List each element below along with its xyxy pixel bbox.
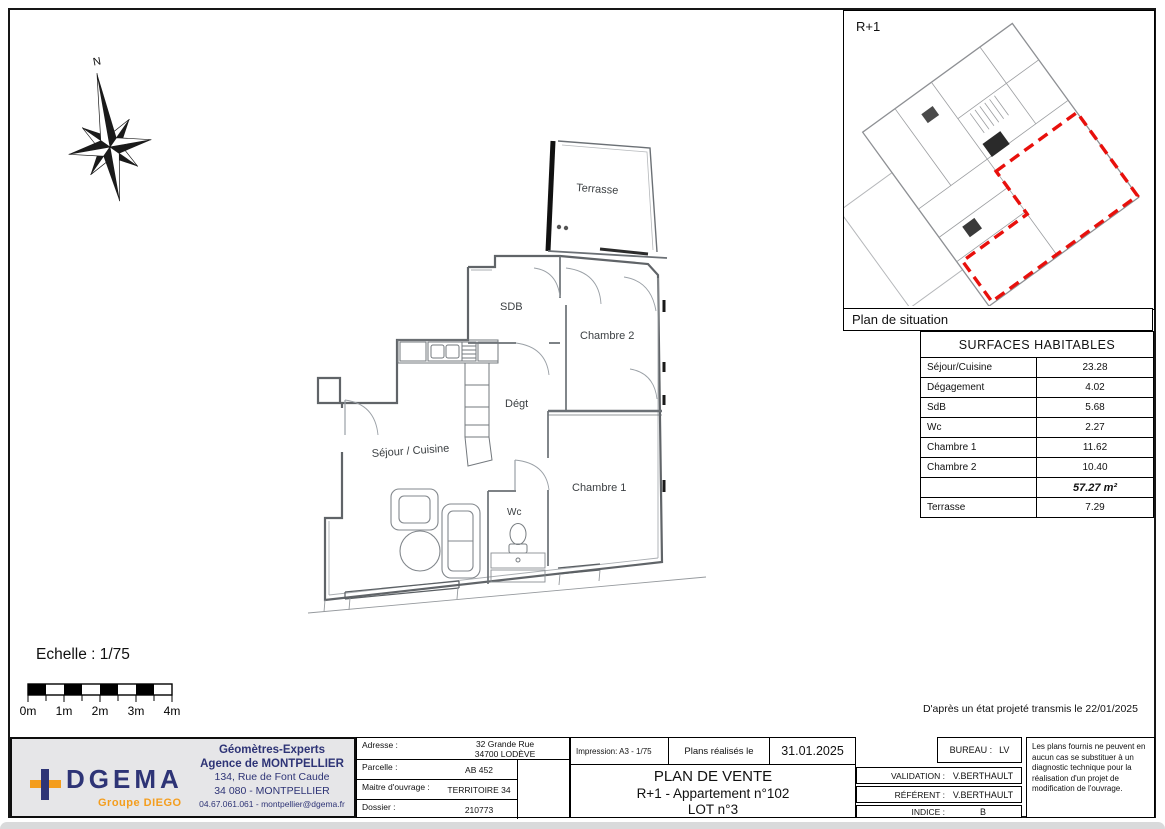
drawing-title: PLAN DE VENTE: [571, 768, 855, 785]
field-maitre-ouvrage: Maitre d'ouvrage : TERRITOIRE 34: [357, 780, 518, 800]
north-label: N: [92, 55, 102, 68]
surfaces-table-title: SURFACES HABITABLES: [921, 332, 1153, 358]
furniture: [391, 489, 480, 578]
plan-sheet: N: [0, 0, 1165, 829]
scale-tick-label: 3m: [128, 704, 145, 718]
validation-field: VALIDATION : V.BERTHAULT: [856, 767, 1022, 784]
table-row: Wc2.27: [921, 418, 1153, 438]
field-adresse: Adresse : 32 Grande Rue 34700 LODÈVE: [357, 738, 569, 760]
room-label-chambre1: Chambre 1: [572, 482, 626, 494]
plans-made-label: Plans réalisés le: [669, 738, 770, 764]
company-line: 04.67.061.061 - montpellier@dgema.fr: [190, 798, 354, 812]
field-dossier: Dossier : 210773: [357, 800, 518, 819]
dgema-logo: DGEMA Groupe DIEGO: [28, 761, 198, 817]
field-parcelle: Parcelle : AB 452: [357, 760, 518, 780]
viewer-bottom-edge: [0, 822, 1165, 829]
company-line: 134, Rue de Font Caude: [190, 771, 354, 785]
table-row: Dégagement4.02: [921, 378, 1153, 398]
room-label-chambre2: Chambre 2: [580, 330, 634, 342]
table-row: Chambre 111.62: [921, 438, 1153, 458]
scale-label: Echelle : 1/75: [36, 646, 130, 664]
pilaster: [318, 378, 340, 403]
plans-made-date: 31.01.2025: [770, 738, 855, 764]
project-fields-block: Adresse : 32 Grande Rue 34700 LODÈVE Par…: [356, 737, 570, 818]
table-row: Séjour/Cuisine23.28: [921, 358, 1153, 378]
indice-field: INDICE : B: [856, 805, 1022, 818]
terrasse-walls: [548, 141, 667, 258]
company-contact: Géomètres-Experts Agence de MONTPELLIER …: [190, 744, 354, 812]
referent-field: RÉFÉRENT : V.BERTHAULT: [856, 786, 1022, 803]
company-block: DGEMA Groupe DIEGO Géomètres-Experts Age…: [10, 737, 356, 818]
projected-state-note: D'après un état projeté transmis le 22/0…: [923, 703, 1138, 715]
room-label-degt: Dégt: [505, 398, 528, 410]
table-row-total: 57.27 m²: [921, 478, 1153, 498]
toilet: [491, 524, 545, 583]
scale-tick-label: 2m: [92, 704, 109, 718]
bureau-field: BUREAU : LV: [937, 737, 1022, 763]
lot-number: LOT n°3: [571, 802, 855, 817]
table-row: Terrasse7.29: [921, 498, 1153, 517]
situation-plan-drawing: [844, 11, 1151, 306]
scale-tick-label: 4m: [164, 704, 181, 718]
drawing-title-block: Impression: A3 - 1/75 Plans réalisés le …: [570, 737, 856, 818]
table-row: SdB5.68: [921, 398, 1153, 418]
brand-name: DGEMA: [66, 764, 183, 795]
drawing-subtitle: R+1 - Appartement n°102: [571, 785, 855, 802]
exterior-wall: [325, 256, 662, 600]
logo-cross-icon: [41, 769, 49, 800]
floor-plan-drawing: Terrasse SDB Chambre 2 Dégt Séjour / Cui…: [280, 120, 720, 640]
situation-plan-box: R+1: [843, 10, 1155, 310]
impression-info: Impression: A3 - 1/75: [571, 738, 669, 764]
scale-tick-label: 0m: [20, 704, 36, 718]
table-row: Chambre 210.40: [921, 458, 1153, 478]
room-label-sdb: SDB: [500, 301, 523, 313]
scale-bar: 0m 1m 2m 3m 4m: [20, 676, 220, 724]
company-line: 34 080 - MONTPELLIER: [190, 785, 354, 799]
brand-group: Groupe DIEGO: [98, 797, 182, 809]
room-label-terrasse: Terrasse: [576, 182, 619, 197]
company-line: Agence de MONTPELLIER: [190, 758, 354, 772]
surfaces-table: SURFACES HABITABLES Séjour/Cuisine23.28 …: [920, 331, 1154, 518]
disclaimer-text: Les plans fournis ne peuvent en aucun ca…: [1026, 737, 1155, 818]
scale-tick-label: 1m: [56, 704, 73, 718]
situation-plan-caption: Plan de situation: [843, 308, 1153, 331]
room-label-sejour-cuisine: Séjour / Cuisine: [371, 443, 449, 460]
north-arrow-icon: N: [0, 0, 220, 230]
room-label-wc: Wc: [507, 507, 521, 518]
company-line: Géomètres-Experts: [190, 744, 354, 758]
